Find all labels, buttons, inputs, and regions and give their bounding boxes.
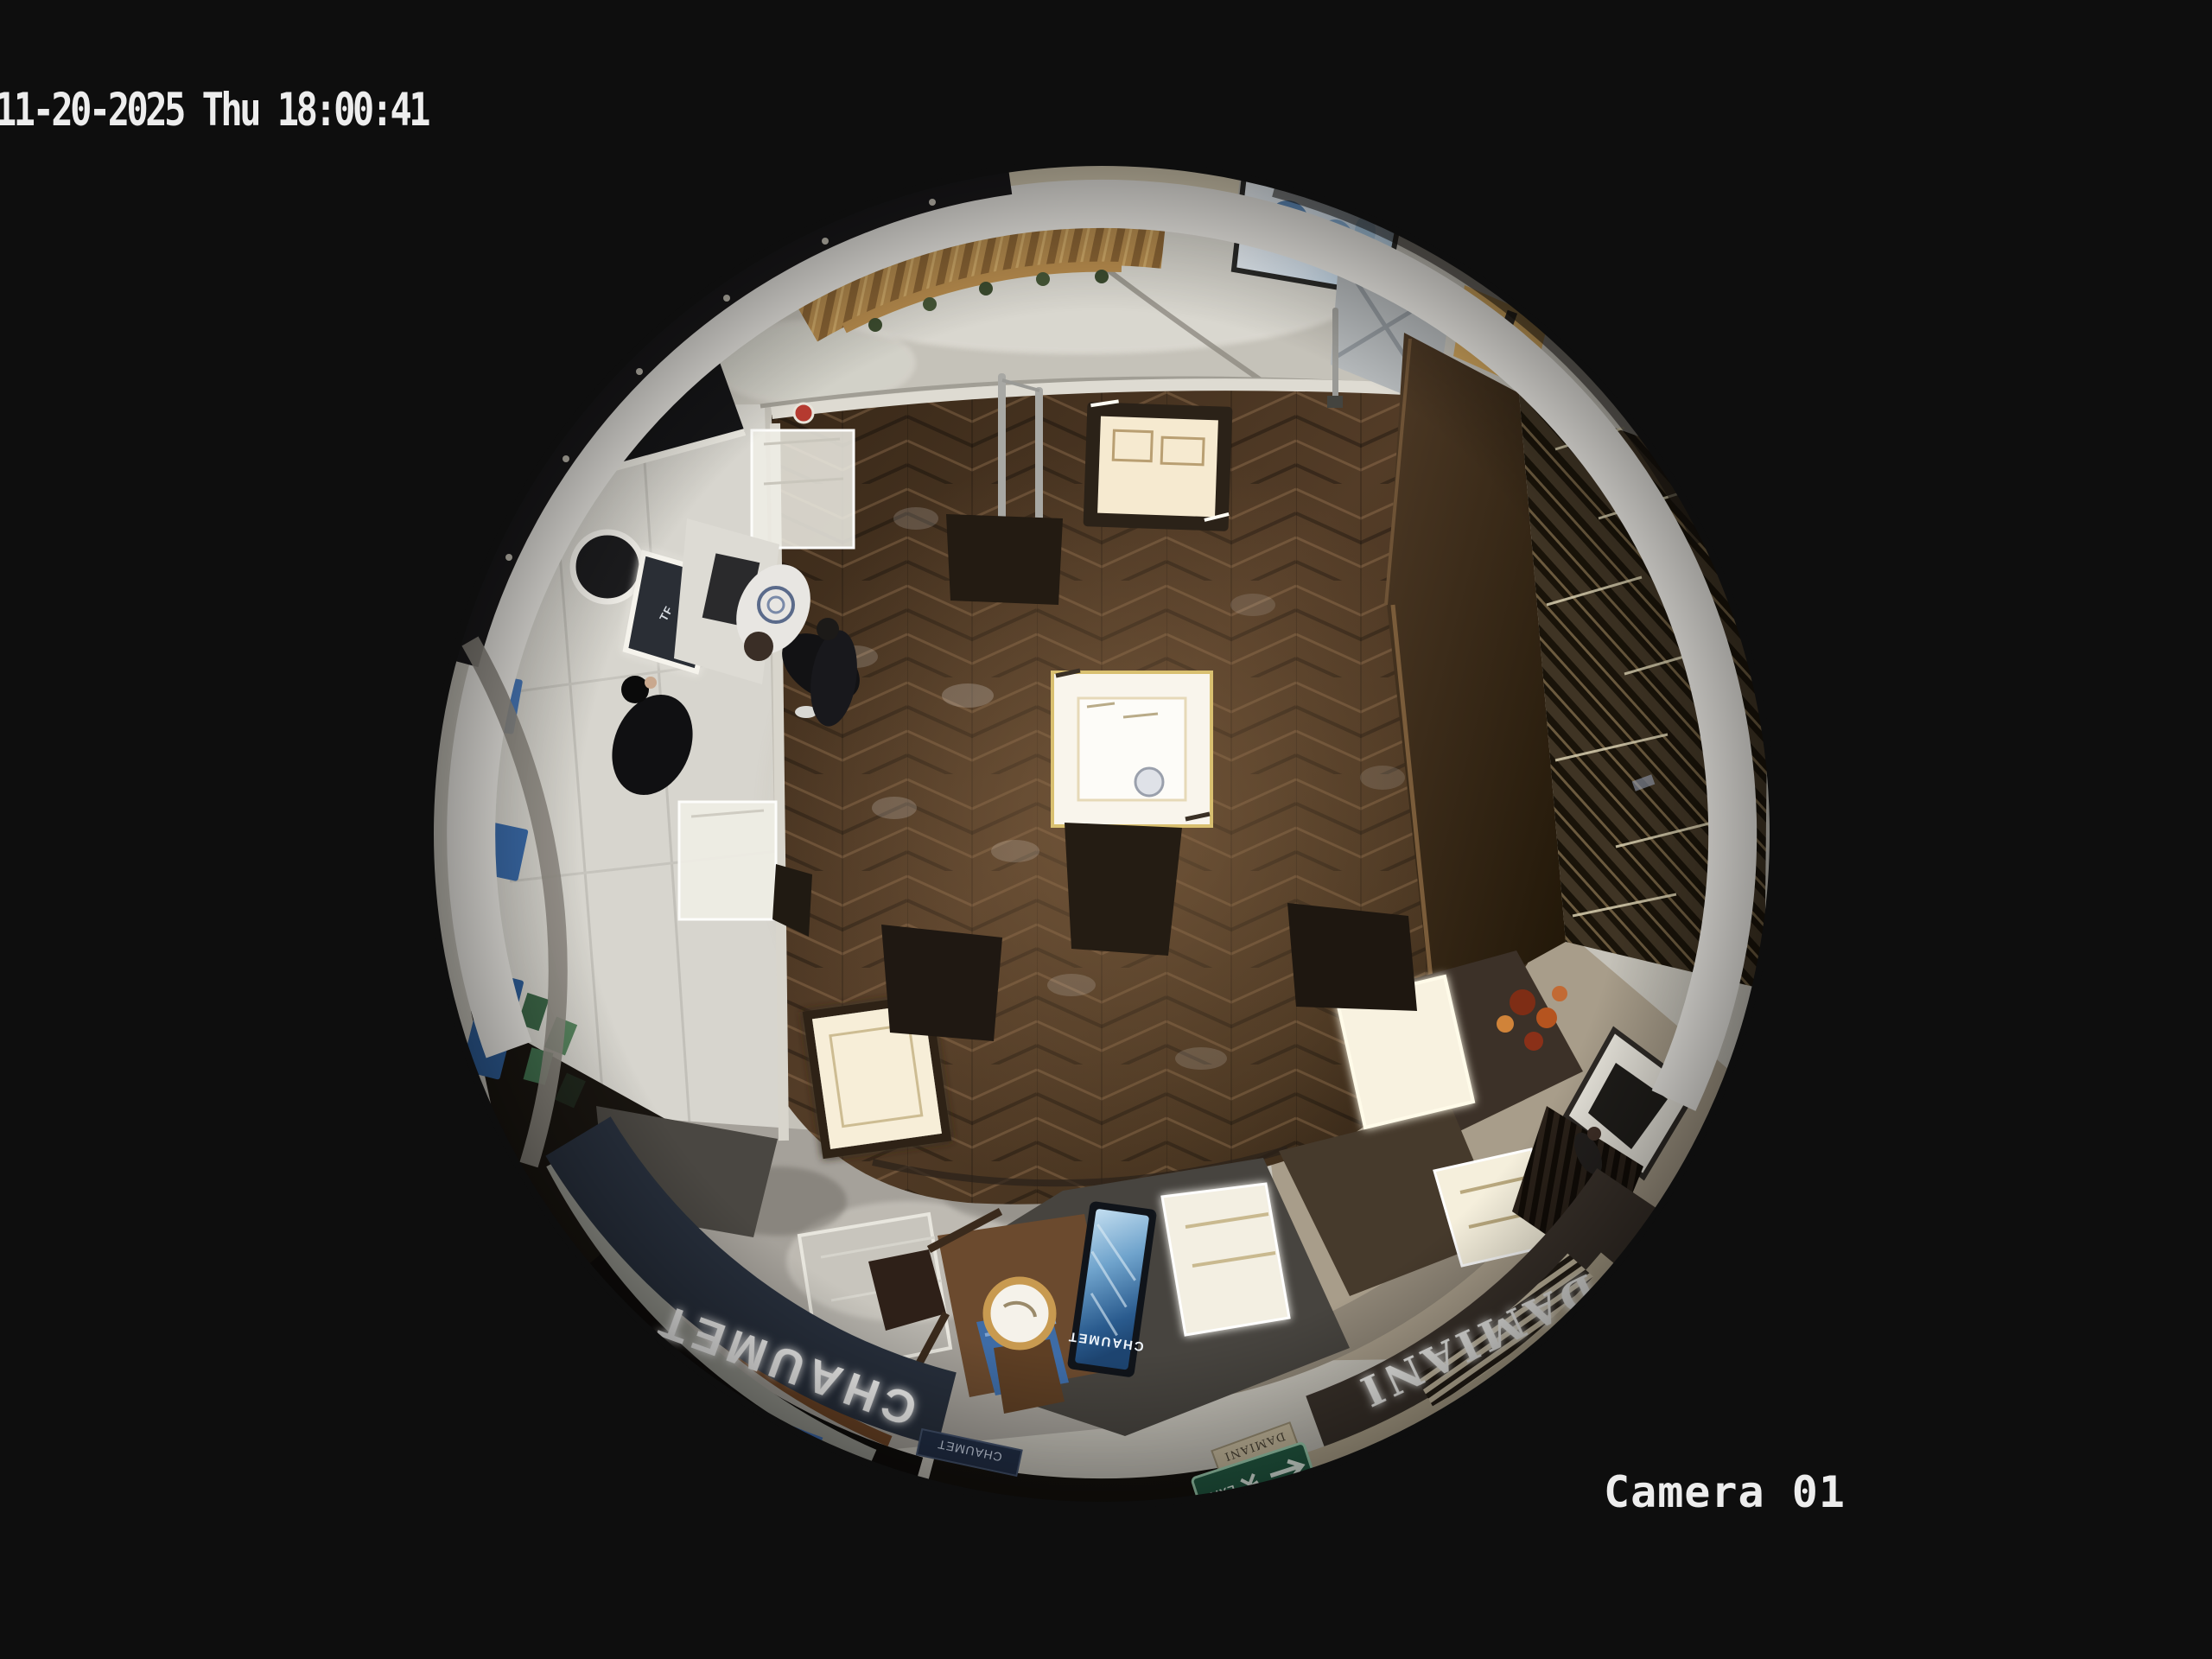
lens-vignette (431, 163, 1772, 1504)
fisheye-view: BURCH (0, 0, 2212, 1659)
osd-camera-label: Camera 01 (1604, 1467, 1846, 1517)
cctv-frame: BURCH (0, 0, 2212, 1659)
osd-datetime: 11-20-2025 Thu 18:00:41 (0, 83, 428, 136)
